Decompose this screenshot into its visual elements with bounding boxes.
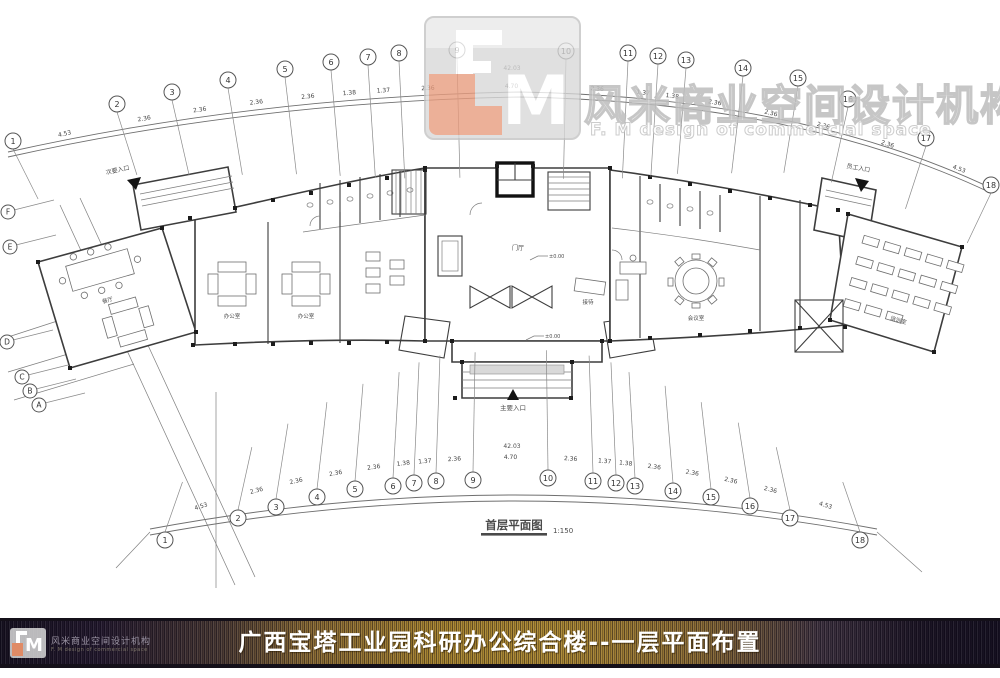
dimension-label: 4.70 (504, 454, 518, 461)
grid-bubble: 1 (5, 133, 21, 149)
vestibule (452, 341, 602, 362)
column-marker (36, 260, 40, 264)
arc-angle-bottom: 42.03 (503, 443, 520, 450)
dimension-label: 4.70 (505, 83, 519, 90)
column-marker (843, 325, 847, 329)
dimension-label: 1.38 (619, 459, 633, 467)
grid-bubble: 7 (360, 49, 376, 65)
dimension-label: 2.36 (590, 85, 604, 93)
dimension-labels-bottom: 4.532.362.362.362.361.381.372.364.702.36… (194, 454, 833, 512)
dimension-label: 2.36 (647, 463, 661, 472)
column-marker (531, 164, 535, 168)
grid-bubble-number: 5 (352, 485, 357, 494)
page-title: 广西宝塔工业园科研办公综合楼--一层平面布置 (0, 621, 1000, 665)
room-label-office1: 办公室 (224, 312, 241, 320)
grid-bubble: 3 (164, 84, 180, 100)
elevator (497, 163, 533, 196)
grid-bubble-number: 7 (411, 479, 416, 488)
grid-bubble-number: 15 (706, 493, 716, 502)
floor-plan-drawing: 123456789101112131415161718 123456789101… (0, 0, 1000, 674)
column-marker (68, 366, 72, 370)
grid-bubble-number: 16 (745, 502, 755, 511)
grid-bubble-number: 3 (169, 88, 174, 97)
column-marker (808, 203, 812, 207)
column-marker (932, 350, 936, 354)
grid-bubble-letter: F (6, 208, 10, 217)
drawing-title: 首层平面图 (485, 518, 543, 532)
grid-bubble: 18 (852, 532, 868, 548)
column-marker (698, 333, 702, 337)
grid-bubble: 2 (230, 510, 246, 526)
column-marker (960, 245, 964, 249)
dimension-label: 1.37 (636, 89, 650, 97)
dimension-label: 2.36 (289, 477, 304, 487)
grid-bubble: 11 (585, 473, 601, 489)
grid-bubble-number: 4 (225, 76, 230, 85)
room-label-meeting: 会议室 (688, 314, 705, 322)
grid-bubble-letter: A (36, 401, 42, 410)
grid-bubble-number: 15 (793, 74, 803, 83)
grid-bubble: 17 (918, 130, 934, 146)
grid-bubble-number: 10 (561, 47, 571, 56)
column-marker (569, 396, 573, 400)
drawing-title-underline (481, 533, 547, 536)
column-marker (600, 339, 604, 343)
dimension-label: 2.36 (421, 85, 435, 93)
left-end-room (38, 228, 196, 368)
grid-bubble-letter: D (4, 338, 10, 347)
dimension-label: 1.38 (396, 459, 410, 467)
column-marker (160, 226, 164, 230)
grid-bubble: 14 (665, 483, 681, 499)
grid-bubble: 5 (347, 481, 363, 497)
column-marker (233, 206, 237, 210)
dimension-label: 2.36 (685, 469, 700, 478)
grid-bubble: 12 (650, 48, 666, 64)
dimension-label: 2.36 (193, 106, 207, 115)
grid-bubble: 8 (428, 473, 444, 489)
dimension-label: 2.36 (137, 114, 152, 123)
column-marker (385, 340, 389, 344)
left-entrance-label: 次要入口 (105, 164, 130, 177)
column-marker (347, 183, 351, 187)
grid-bubble-number: 18 (986, 181, 996, 190)
grid-bubble-number: 1 (10, 137, 15, 146)
dimension-label: 1.37 (377, 87, 391, 95)
grid-bubble: 9 (465, 472, 481, 488)
grid-bubble: 10 (540, 470, 556, 486)
column-marker (768, 196, 772, 200)
dimension-label: 2.36 (301, 93, 315, 101)
grid-bubble: 10 (558, 43, 574, 59)
grid-bubble-letter: C (19, 373, 24, 382)
column-marker (453, 396, 457, 400)
grid-bubble-number: 6 (328, 58, 333, 67)
grid-bubble: 12 (608, 475, 624, 491)
grid-bubble-number: 11 (588, 477, 598, 486)
grid-bubble: 3 (268, 499, 284, 515)
grid-bubble-number: 12 (653, 52, 663, 61)
column-marker (748, 329, 752, 333)
grid-bubble: 6 (385, 478, 401, 494)
elevation-label: ±0.00 (549, 254, 564, 260)
dimension-label: 2.36 (249, 98, 263, 107)
column-marker (608, 339, 612, 343)
grid-bubble-number: 10 (543, 474, 553, 483)
grid-bubble: 13 (627, 478, 643, 494)
grid-bubble: 16 (742, 498, 758, 514)
column-marker (648, 336, 652, 340)
grid-bubble: 15 (790, 70, 806, 86)
column-marker (271, 342, 275, 346)
column-marker (846, 212, 850, 216)
dimension-label: 2.36 (880, 139, 895, 150)
room-label-hall: 门厅 (512, 244, 524, 252)
dimension-label: 2.36 (708, 98, 723, 107)
grid-bubble: 16 (840, 91, 856, 107)
column-marker (347, 341, 351, 345)
dimension-label: 2.36 (367, 463, 381, 472)
dimension-label: 1.38 (665, 92, 679, 101)
dimension-label: 2.36 (249, 486, 264, 496)
grid-bubble-number: 13 (630, 482, 640, 491)
grid-bubble-number: 17 (785, 514, 795, 523)
column-marker (570, 360, 574, 364)
grid-bubble: 8 (391, 45, 407, 61)
arc-angle-top: 42.03 (503, 65, 520, 72)
footer-bar: M 风米商业空间设计机构 F. M design of commercial s… (0, 618, 1000, 668)
grid-bubble-number: 16 (843, 95, 853, 104)
column-marker (385, 176, 389, 180)
grid-bubble: 13 (678, 52, 694, 68)
room-label-office2: 办公室 (298, 312, 315, 320)
grid-bubble: 14 (735, 60, 751, 76)
dimension-label: 2.36 (564, 455, 578, 463)
column-marker (828, 318, 832, 322)
column-marker (233, 342, 237, 346)
dimension-label: 1.38 (342, 89, 356, 97)
grid-bubble-number: 2 (235, 514, 240, 523)
column-marker (495, 164, 499, 168)
grid-bubble-number: 4 (314, 493, 319, 502)
building-walls (38, 167, 962, 398)
dimension-label: 2.36 (724, 476, 739, 486)
grid-bubble-number: 9 (454, 46, 459, 55)
column-marker (194, 330, 198, 334)
grid-bubble: 5 (277, 61, 293, 77)
grid-bubble-number: 18 (855, 536, 865, 545)
dimension-label: 2.36 (763, 485, 778, 495)
dimension-label: 1.37 (598, 457, 612, 465)
grid-bubble: 1 (157, 532, 173, 548)
grid-bubble-number: 1 (162, 536, 167, 545)
column-marker (191, 343, 195, 347)
column-marker (271, 198, 275, 202)
elevation-label: ±0.00 (545, 334, 560, 340)
grid-bubble: 6 (323, 54, 339, 70)
dimension-label: 2.36 (764, 109, 779, 119)
grid-bubble: 11 (620, 45, 636, 61)
dimension-label: 1.37 (418, 457, 432, 465)
grid-bubble-number: 13 (681, 56, 691, 65)
grid-bubble-number: 2 (114, 100, 119, 109)
dimension-label: 2.36 (329, 469, 344, 478)
grid-bubble-number: 5 (282, 65, 287, 74)
column-marker (309, 341, 313, 345)
grid-bubble: 7 (406, 475, 422, 491)
grid-bubble-number: 17 (921, 134, 931, 143)
column-marker (728, 189, 732, 193)
dimension-label: 4.53 (952, 164, 967, 175)
grid-bubble: 18 (983, 177, 999, 193)
grid-bubble-number: 12 (611, 479, 621, 488)
grid-bubble: 4 (220, 72, 236, 88)
room-label-reception: 接待 (582, 298, 594, 306)
dimension-label: 4.53 (57, 129, 72, 139)
column-marker (188, 216, 192, 220)
grid-bubble-number: 14 (738, 64, 748, 73)
column-marker (608, 166, 612, 170)
dimension-label: 2.36 (816, 121, 831, 131)
column-marker (423, 166, 427, 170)
grid-bubble-number: 7 (365, 53, 370, 62)
column-marker (648, 175, 652, 179)
column-marker (460, 360, 464, 364)
grid-bubble-letter: E (8, 243, 13, 252)
grid-bubble: 17 (782, 510, 798, 526)
grid-bubble-number: 14 (668, 487, 678, 496)
grid-bubble: 4 (309, 489, 325, 505)
grid-bubble-number: 6 (390, 482, 395, 491)
grid-bubble-number: 9 (470, 476, 475, 485)
dimension-label: 2.36 (448, 455, 462, 463)
column-marker (423, 339, 427, 343)
column-marker (450, 339, 454, 343)
column-marker (688, 182, 692, 186)
dimension-label: 4.53 (194, 501, 209, 512)
drawing-scale: 1:150 (553, 527, 573, 535)
column-marker (798, 326, 802, 330)
column-marker (836, 208, 840, 212)
grid-bubble-number: 11 (623, 49, 633, 58)
column-marker (309, 191, 313, 195)
grid-bubble: 2 (109, 96, 125, 112)
right-entrance-label: 员工入口 (846, 163, 871, 174)
dimension-label: 4.53 (818, 500, 833, 511)
grid-bubble-number: 8 (396, 49, 401, 58)
main-entrance-label: 主要入口 (500, 403, 526, 412)
grid-bubble-number: 3 (273, 503, 278, 512)
grid-bubble-letter: B (27, 387, 32, 396)
grid-bubble: 15 (703, 489, 719, 505)
slide-canvas: 123456789101112131415161718 123456789101… (0, 0, 1000, 674)
grid-bubble: 9 (449, 42, 465, 58)
grid-bubble-number: 8 (433, 477, 438, 486)
